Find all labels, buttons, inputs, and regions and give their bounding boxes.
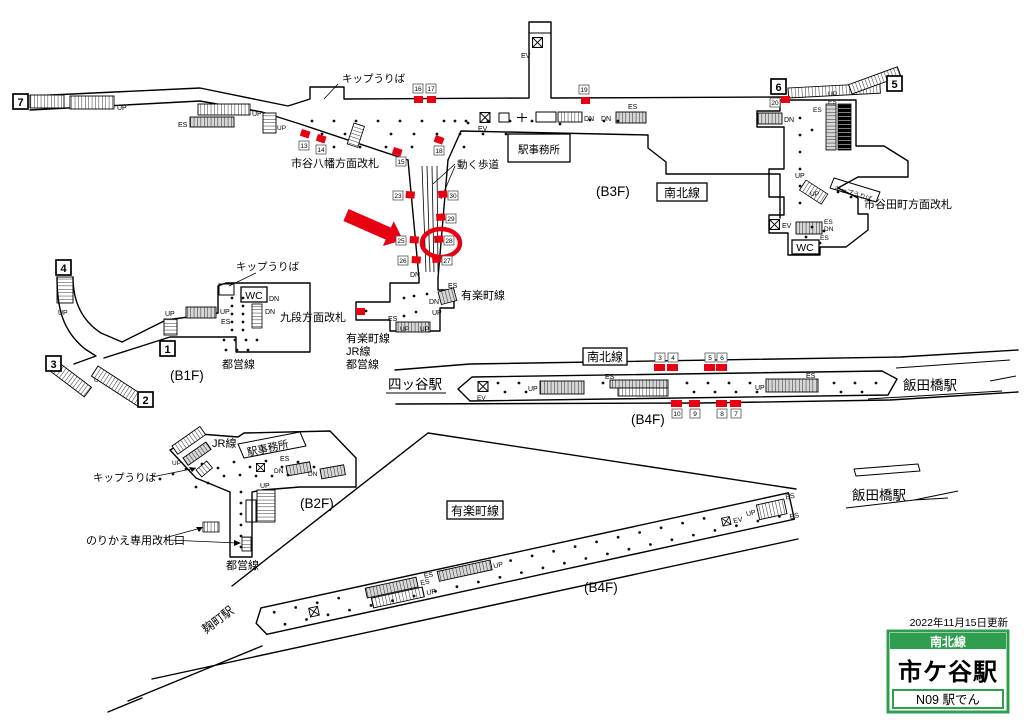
ad-location-marker xyxy=(716,364,727,371)
dn-label: DN xyxy=(274,468,284,475)
pillar-dot xyxy=(520,571,523,574)
pillar-dot xyxy=(403,315,406,318)
pillar-dot xyxy=(799,185,802,188)
pillar-dot xyxy=(542,567,545,570)
exit-badge: 6 xyxy=(771,79,786,94)
pillar-dot xyxy=(735,524,738,527)
pillar-dot xyxy=(454,120,457,123)
location-badge-number: 14 xyxy=(317,147,325,154)
pillar-dot xyxy=(271,475,274,478)
kojimachi-station-label: 麹町駅 xyxy=(199,603,237,637)
pillar-dot xyxy=(477,581,480,584)
ev-label: EV xyxy=(733,516,744,525)
floor-label-b4f-namboku: (B4F) xyxy=(631,412,665,427)
location-badge-number: 6 xyxy=(720,355,724,362)
pillar-dot xyxy=(602,382,605,385)
pillar-dot xyxy=(201,463,204,466)
pillar-dot xyxy=(660,526,663,529)
ev-label: EV xyxy=(782,223,792,230)
pillar-dot xyxy=(861,391,864,394)
pillar-dot xyxy=(707,382,710,385)
floor-label-b1f: (B1F) xyxy=(170,368,204,383)
norikae-gate-comb-b xyxy=(242,537,251,551)
elevator-yurakucho xyxy=(721,516,731,526)
location-badge: 19 xyxy=(579,85,589,94)
up-label: UP xyxy=(260,483,270,490)
exit-badge: 4 xyxy=(56,260,71,275)
location-badge-number: 17 xyxy=(427,86,435,93)
stairs-tamachi-black xyxy=(838,104,851,150)
ticket-office-label-b3f: キップうりば xyxy=(342,73,405,85)
stairs-yurakucho-right xyxy=(756,499,787,520)
ad-location-marker xyxy=(689,400,700,407)
iidabashi-label-yurakucho: 飯田橋駅 xyxy=(852,488,906,503)
pillar-dot xyxy=(703,517,706,520)
location-badge-number: 20 xyxy=(771,100,779,107)
pillar-dot xyxy=(413,295,416,298)
pillar-dot xyxy=(799,168,802,171)
pillar-dot xyxy=(413,595,416,598)
ad-location-marker xyxy=(316,134,327,143)
up-label: UP xyxy=(277,125,286,132)
pillar-dot xyxy=(509,120,512,123)
wc-label-b1f: WC xyxy=(245,290,263,302)
pillar-dot xyxy=(811,129,814,132)
location-badge: 3 xyxy=(655,353,665,362)
pillar-dot xyxy=(242,297,245,300)
fixture-box xyxy=(499,113,509,122)
legend: 2022年11月15日更新 南北線 市ケ谷駅 N09 駅でん xyxy=(888,616,1008,712)
pillar-dot xyxy=(837,191,840,194)
stairs-exit7-b xyxy=(70,96,114,109)
pillar-dot xyxy=(233,461,236,464)
exit-badge: 1 xyxy=(160,341,175,356)
pillar-dot xyxy=(225,349,228,352)
pillar-dot xyxy=(606,553,609,556)
exit-badges-layer: 7654321 xyxy=(13,76,902,407)
escalator-tamachi-gray xyxy=(826,104,836,150)
pillar-dot xyxy=(239,474,242,477)
b2f-side-block xyxy=(246,500,256,522)
pillar-dot xyxy=(242,321,245,324)
location-badge-number: 26 xyxy=(399,258,407,265)
pillar-dot xyxy=(749,382,752,385)
location-badge: 29 xyxy=(446,214,456,223)
pillar-dot xyxy=(249,466,252,469)
es-label: ES xyxy=(813,107,822,114)
stairs-b1f-up xyxy=(186,307,216,318)
location-badge: 30 xyxy=(448,191,458,200)
legend-updated: 2022年11月15日更新 xyxy=(910,616,1009,629)
location-badge: 25 xyxy=(396,236,406,245)
ad-location-marker xyxy=(730,400,741,407)
stairs-namboku-right xyxy=(766,379,818,392)
ad-location-marker xyxy=(671,400,682,407)
pillar-dot xyxy=(240,535,243,538)
pillar-dot xyxy=(671,538,674,541)
pillar-dot xyxy=(799,151,802,154)
pillar-dot xyxy=(333,120,336,123)
exit-badge: 3 xyxy=(46,356,61,371)
pillar-dot xyxy=(559,123,562,126)
location-badge-number: 3 xyxy=(658,355,662,362)
up-label: UP xyxy=(528,386,538,393)
location-badge: 17 xyxy=(426,84,436,93)
escalator-mid xyxy=(190,117,234,127)
pillar-dot xyxy=(799,202,802,205)
pillar-dot xyxy=(255,475,258,478)
pillar-dot xyxy=(245,339,248,342)
station-map: UP UP ES UP キップうりば 市谷八幡方面改札 EV EV DN ES … xyxy=(0,0,1024,720)
pillar-dot xyxy=(223,475,226,478)
stairs-b2f-up xyxy=(257,490,275,522)
pillar-dot xyxy=(638,531,641,534)
es-label: ES xyxy=(820,235,829,242)
location-badge-number: 23 xyxy=(394,193,402,200)
yurakucho-platform-outline xyxy=(253,493,794,636)
ticket-office-label-b1f: キップうりば xyxy=(236,261,299,273)
location-badge: 18 xyxy=(434,146,444,155)
ad-location-marker xyxy=(704,364,715,371)
pillar-dot xyxy=(728,382,731,385)
kudan-gate-label: 九段方面改札 xyxy=(280,310,346,324)
ad-location-marker xyxy=(438,190,447,198)
es-label: ES xyxy=(806,373,816,380)
pillar-dot xyxy=(649,543,652,546)
location-badge: 16 xyxy=(413,84,423,93)
ad-location-marker xyxy=(414,96,423,103)
pillar-dot xyxy=(172,473,175,476)
location-badge-number: 10 xyxy=(673,411,681,418)
pillar-dot xyxy=(273,611,276,614)
yurakucho-label-transfer: 有楽町線 xyxy=(461,288,505,302)
pillar-dot xyxy=(217,467,220,470)
iidabashi-label-namboku: 飯田橋駅 xyxy=(903,378,957,393)
toei-label-b2f: 都営線 xyxy=(226,558,259,572)
pillar-dot xyxy=(617,120,620,123)
stairs-tamachi-lower xyxy=(796,222,822,234)
ad-location-marker xyxy=(436,213,445,221)
pillar-dot xyxy=(207,482,210,485)
pillar-dot xyxy=(603,120,606,123)
location-badge-number: 15 xyxy=(397,159,405,166)
ad-location-marker xyxy=(300,129,311,138)
pillar-dot xyxy=(525,391,528,394)
kudan-gate-comb xyxy=(252,304,262,328)
stairs-dn-b xyxy=(616,112,646,123)
pillar-dot xyxy=(589,119,592,122)
location-badge: 28 xyxy=(444,236,454,245)
location-badge: 26 xyxy=(398,256,408,265)
station-office-label-b3f: 駅事務所 xyxy=(518,143,560,156)
exit-number: 5 xyxy=(891,79,897,91)
stairs-b2f-dn-b xyxy=(320,465,345,479)
pillar-dot xyxy=(411,146,414,149)
up-label: UP xyxy=(220,309,230,316)
pillar-dot xyxy=(284,623,287,626)
stairs-namboku-mid xyxy=(618,388,668,396)
pillar-dot xyxy=(840,391,843,394)
stairs-tamachi-dn xyxy=(758,113,782,124)
pillar-dot xyxy=(337,597,340,600)
hachiman-gate-comb xyxy=(347,123,364,147)
pillar-dot xyxy=(714,529,717,532)
pillar-dot xyxy=(413,133,416,136)
exit-number: 3 xyxy=(50,359,56,371)
pillar-dot xyxy=(552,550,555,553)
pillar-dot xyxy=(305,618,308,621)
moving-walkway-label: 動く歩道 xyxy=(457,158,499,171)
dn-label: DN xyxy=(265,309,275,316)
pillar-dot xyxy=(463,146,466,149)
station-map-page: UP UP ES UP キップうりば 市谷八幡方面改札 EV EV DN ES … xyxy=(0,0,1024,720)
pointer-line xyxy=(324,84,338,99)
ev-label: EV xyxy=(478,126,488,133)
fixture-yurakucho xyxy=(309,606,320,617)
pillar-dot xyxy=(811,226,814,229)
dn-label: DN xyxy=(308,471,318,478)
ad-location-marker xyxy=(434,135,445,145)
b1f-corridor-right xyxy=(73,277,122,342)
pillar-dot xyxy=(359,146,362,149)
pillar-dot xyxy=(686,382,689,385)
ticket-office-box-b1f xyxy=(219,284,234,295)
location-badge-number: 16 xyxy=(414,86,422,93)
pillar-dot xyxy=(294,606,297,609)
location-badge: 27 xyxy=(442,256,452,265)
pillar-dot xyxy=(617,536,620,539)
pillar-dot xyxy=(518,382,521,385)
pillar-dot xyxy=(242,305,245,308)
location-badge: 5 xyxy=(705,353,715,362)
pillar-dot xyxy=(504,391,507,394)
pillar-dot xyxy=(819,242,822,245)
pillar-dot xyxy=(344,133,347,136)
pillar-dot xyxy=(231,329,234,332)
location-badge-number: 5 xyxy=(708,355,712,362)
jr-line-label-b2f: JR線 xyxy=(212,436,236,450)
up-label: UP xyxy=(165,311,175,318)
pillar-dot xyxy=(287,474,290,477)
up-label: UP xyxy=(58,310,68,317)
namboku-platform-outline xyxy=(458,371,897,401)
es-label: ES xyxy=(628,104,638,111)
pillar-dot xyxy=(778,515,781,518)
legend-code-label: N09 駅でん xyxy=(916,693,980,707)
pillar-dot xyxy=(231,305,234,308)
pillar-dot xyxy=(436,133,439,136)
pillar-dot xyxy=(403,297,406,300)
pillar-dot xyxy=(735,391,738,394)
pillar-dot xyxy=(399,120,402,123)
pillar-dot xyxy=(505,133,508,136)
transfer-lines-label-3: 都営線 xyxy=(346,357,379,371)
pillar-dot xyxy=(242,313,245,316)
exit-number: 6 xyxy=(775,82,781,94)
es-label: ES xyxy=(280,456,290,463)
location-badge: 6 xyxy=(717,353,727,362)
pillar-dot xyxy=(333,146,336,149)
es-label: ES xyxy=(423,571,434,580)
ad-location-marker xyxy=(432,255,441,263)
pillar-dot xyxy=(459,133,462,136)
pillar-dot xyxy=(499,576,502,579)
dn-label: DN xyxy=(269,296,279,303)
pillar-dot xyxy=(223,339,226,342)
ad-location-marker xyxy=(581,97,590,104)
location-badge-number: 4 xyxy=(671,355,675,362)
namboku-line-label-platform: 南北線 xyxy=(587,349,623,364)
pillar-dot xyxy=(159,478,162,481)
yurakucho-line-label: 有楽町線 xyxy=(451,503,499,518)
legend-station-label: 市ケ谷駅 xyxy=(898,658,998,686)
ad-location-marker xyxy=(716,400,727,407)
pillar-dot xyxy=(595,541,598,544)
transfer-lines-label-1: 有楽町線 xyxy=(346,331,390,345)
elevator-namboku-platform xyxy=(478,382,488,392)
ad-location-marker xyxy=(781,96,790,103)
up-label: UP xyxy=(828,91,837,98)
stairs-dn-a xyxy=(558,112,582,122)
location-badge: 15 xyxy=(396,157,406,166)
pointer-line-b2f-kippu xyxy=(152,468,196,477)
stairs-mid-vert xyxy=(263,113,276,133)
stairs-exit4 xyxy=(57,277,73,303)
floor-label-b2f: (B2F) xyxy=(300,496,334,511)
pillar-dot xyxy=(757,520,760,523)
pillar-dot xyxy=(321,133,324,136)
location-badge: 20 xyxy=(770,98,780,107)
b2f-kippu-comb xyxy=(196,461,213,477)
pillar-dot xyxy=(467,122,470,125)
pillar-dot xyxy=(297,461,300,464)
location-badge-number: 8 xyxy=(720,411,724,418)
pillar-dot xyxy=(242,329,245,332)
pillar-dot xyxy=(390,133,393,136)
pillar-dot xyxy=(355,120,358,123)
pillar-dot xyxy=(234,339,237,342)
ad-location-marker xyxy=(412,256,421,264)
yurakucho-platform: ES UP ES UP EV UP ES ES xyxy=(253,492,800,637)
pillar-dot xyxy=(434,590,437,593)
location-badge: 23 xyxy=(393,191,403,200)
location-badge-number: 30 xyxy=(449,193,457,200)
up-label: UP xyxy=(252,111,262,118)
stairs-exit2 xyxy=(91,366,144,406)
pillar-dot xyxy=(585,557,588,560)
pillar-dot xyxy=(693,391,696,394)
up-label: UP xyxy=(432,310,442,317)
pillar-dot xyxy=(465,120,468,123)
pointer-line-b1f xyxy=(229,273,256,286)
location-badge-number: 27 xyxy=(443,258,451,265)
location-badge-number: 9 xyxy=(693,411,697,418)
pillar-dot xyxy=(805,236,808,239)
pillar-dot xyxy=(574,545,577,548)
exit-number: 1 xyxy=(164,344,170,356)
pillar-dot xyxy=(195,486,198,489)
pillar-dot xyxy=(714,391,717,394)
pillar-dot xyxy=(823,230,826,233)
up-label: UP xyxy=(172,460,181,467)
pillar-dot xyxy=(385,146,388,149)
pillar-dot xyxy=(231,321,234,324)
location-badge-number: 25 xyxy=(397,238,405,245)
pillar-dot xyxy=(240,502,243,505)
up-label: UP xyxy=(420,326,429,333)
fixture-box2 xyxy=(536,112,556,122)
highlight-arrow xyxy=(343,209,403,246)
pillar-dot xyxy=(265,460,268,463)
pillar-dot xyxy=(531,120,534,123)
floor-label-b4f-yurakucho: (B4F) xyxy=(584,580,618,595)
location-badge: 10 xyxy=(672,409,682,418)
up-label: UP xyxy=(117,105,127,112)
iidabashi-yurakucho-box xyxy=(854,464,920,476)
ad-location-marker xyxy=(667,364,678,371)
pillar-dot xyxy=(185,468,188,471)
pillar-dot xyxy=(231,297,234,300)
pointer-arrowhead-3 xyxy=(234,540,241,546)
location-badge-number: 28 xyxy=(445,238,453,245)
ad-location-marker xyxy=(356,308,365,315)
elevator-top xyxy=(533,38,543,48)
dn-label: DN xyxy=(429,299,439,306)
up-label: UP xyxy=(400,326,409,333)
escalator-namboku xyxy=(610,380,668,388)
pillar-dot xyxy=(377,120,380,123)
toei-label-b1f: 都営線 xyxy=(222,357,255,371)
pillar-dot xyxy=(236,349,239,352)
norikae-gate-comb-a xyxy=(203,522,219,532)
dn-label: DN xyxy=(784,117,794,124)
pillar-dot xyxy=(311,120,314,123)
stairs-exit7-a xyxy=(30,95,64,108)
exit-badge: 2 xyxy=(138,392,153,407)
pillar-dot xyxy=(240,546,243,549)
ev-label: EV xyxy=(477,395,486,402)
stairs-exit1 xyxy=(164,319,177,335)
pillar-dot xyxy=(509,559,512,562)
pillar-dot xyxy=(313,466,316,469)
location-badge-number: 18 xyxy=(435,148,443,155)
pillar-dot xyxy=(531,555,534,558)
pillar-dot xyxy=(854,382,857,385)
pillar-dot xyxy=(365,310,368,313)
pillar-dot xyxy=(240,524,243,527)
pillar-dot xyxy=(421,120,424,123)
location-badge: 4 xyxy=(668,353,678,362)
ad-location-marker xyxy=(406,191,415,199)
pillar-dot xyxy=(756,391,759,394)
ad-location-marker xyxy=(410,236,419,244)
yotsuya-station-label: 四ッ谷駅 xyxy=(388,377,442,392)
pointer-arrowhead-2 xyxy=(196,527,203,532)
pillar-dot xyxy=(681,522,684,525)
exit-badge: 7 xyxy=(13,94,28,109)
ticket-office-label-b2f: キップうりば xyxy=(93,472,156,484)
pillar-dot xyxy=(370,604,373,607)
pillar-dot xyxy=(799,134,802,137)
es-label: ES xyxy=(824,219,833,226)
location-badge: 7 xyxy=(731,409,741,418)
pillar-dot xyxy=(799,117,802,120)
es-label: ES xyxy=(388,316,398,323)
dn-label: DN xyxy=(824,226,834,233)
es-label: ES xyxy=(789,512,800,521)
location-badge: 9 xyxy=(690,409,700,418)
ev-label: EV xyxy=(521,53,531,60)
